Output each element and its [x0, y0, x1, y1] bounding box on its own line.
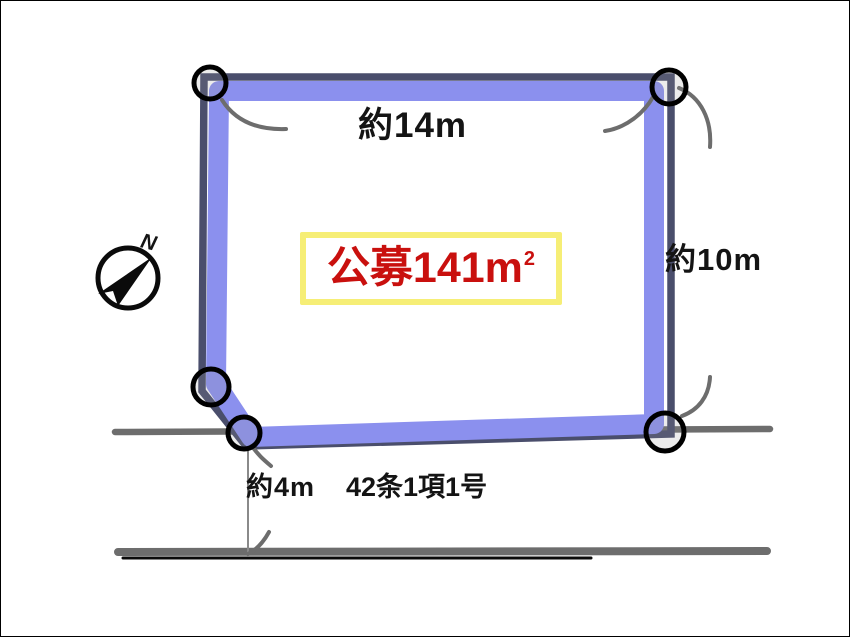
- corner-circle-top-right: [652, 70, 686, 104]
- corner-circle-top-left: [194, 67, 226, 99]
- area-label-superscript: 2: [524, 248, 535, 270]
- corner-circle-bottom-right: [646, 413, 684, 451]
- road-far-edge-line: [118, 551, 767, 552]
- arc-bottom-right: [682, 377, 710, 416]
- plot-diagram-svg: [1, 1, 850, 637]
- road-classification-label: 42条1項1号: [346, 474, 487, 501]
- land-plot-diagram: 約14m 約10m 約4m 42条1項1号 N 公募141m2: [0, 0, 850, 637]
- dimension-top-label: 約14m: [358, 108, 467, 143]
- area-label-text: 公募141m2: [327, 247, 535, 290]
- road-width-label: 約4m: [246, 474, 315, 501]
- area-label-value: 公募141m: [327, 244, 523, 292]
- corner-circle-bottom-left: [228, 417, 260, 449]
- area-label-box: 公募141m2: [300, 232, 562, 305]
- corner-circle-left-lower: [193, 369, 229, 405]
- dimension-right-label: 約10m: [665, 244, 762, 275]
- arc-top-left: [222, 100, 286, 129]
